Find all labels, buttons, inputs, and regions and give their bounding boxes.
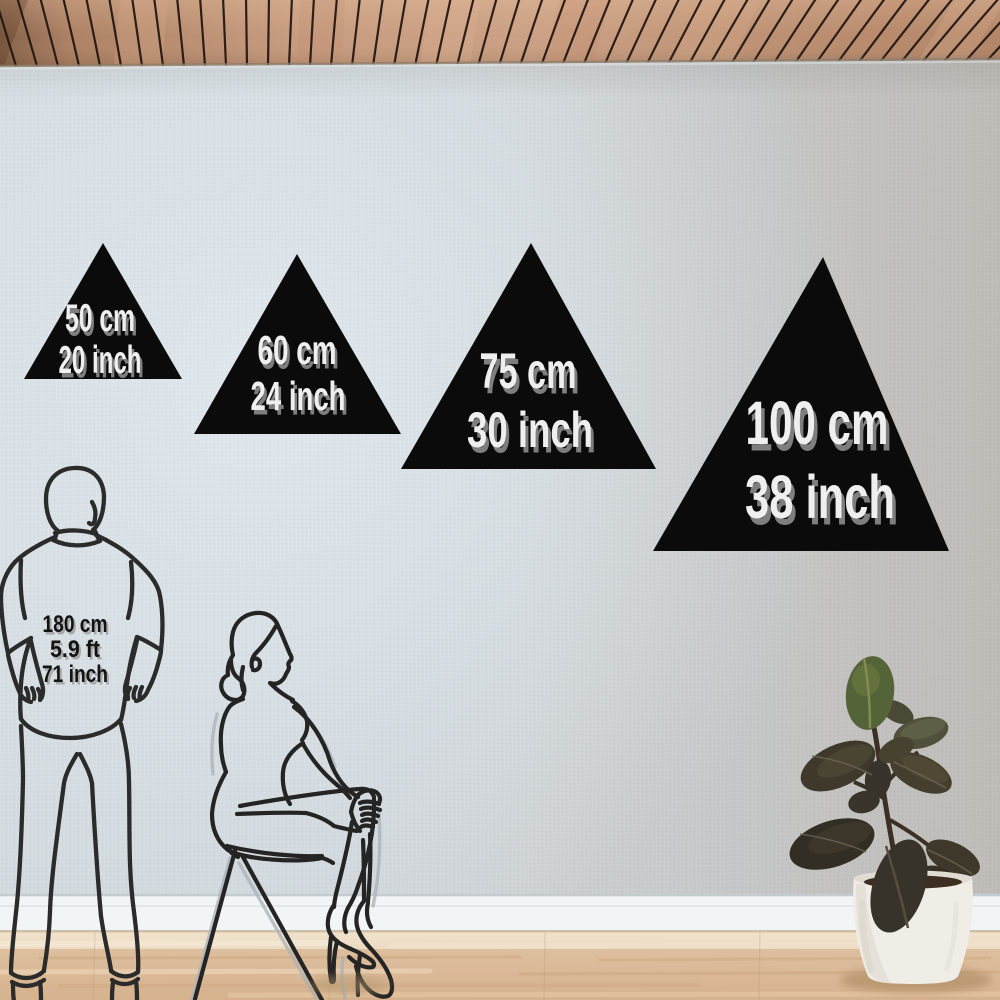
svg-text:20 inch: 20 inch (59, 339, 142, 382)
svg-text:5.9 ft: 5.9 ft (50, 636, 100, 663)
svg-text:180 cm: 180 cm (43, 611, 108, 638)
svg-text:60 cm: 60 cm (258, 327, 337, 373)
svg-text:71 inch: 71 inch (42, 661, 108, 688)
svg-text:75 cm: 75 cm (480, 343, 577, 399)
svg-text:30 inch: 30 inch (467, 402, 593, 458)
svg-text:24 inch: 24 inch (251, 373, 346, 419)
svg-text:100 cm: 100 cm (746, 389, 889, 457)
svg-text:38 inch: 38 inch (745, 463, 895, 531)
svg-text:50 cm: 50 cm (65, 297, 135, 340)
